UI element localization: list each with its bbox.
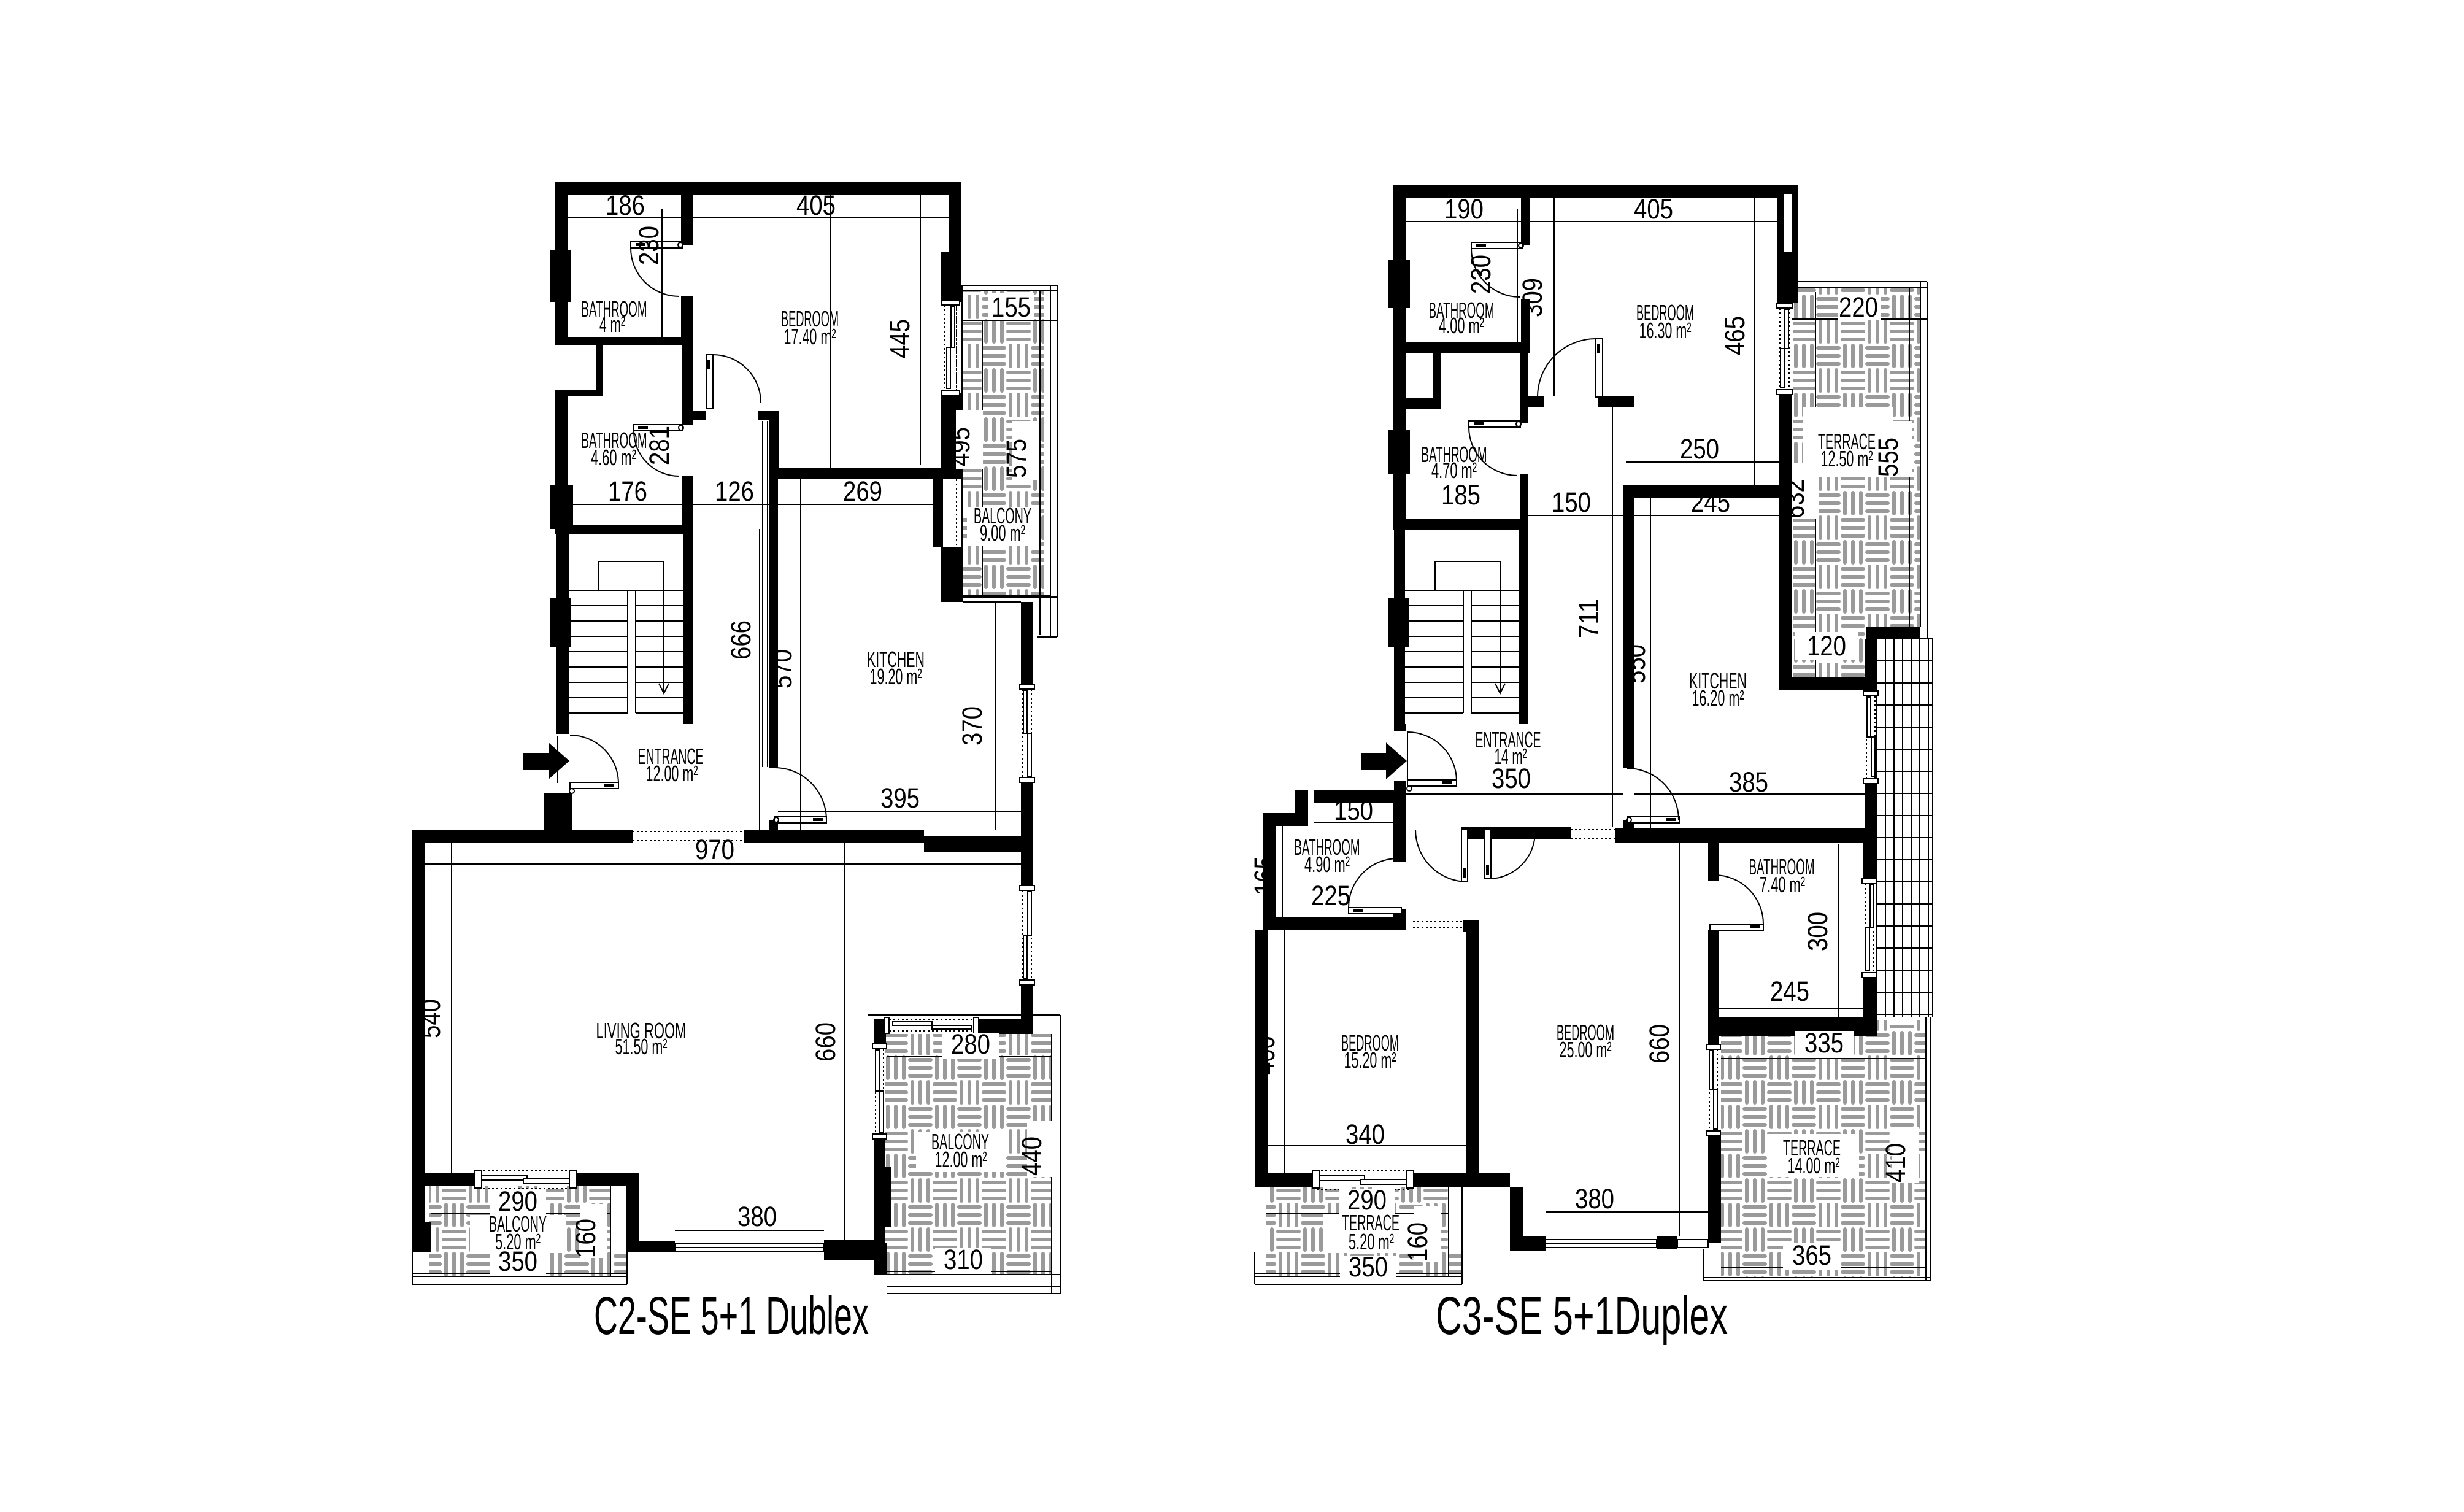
svg-text:176: 176	[608, 476, 647, 507]
svg-text:120: 120	[1807, 630, 1846, 661]
svg-text:666: 666	[725, 620, 757, 660]
svg-text:660: 660	[810, 1022, 841, 1062]
svg-text:250: 250	[1680, 433, 1719, 465]
svg-text:350: 350	[1349, 1251, 1388, 1282]
svg-text:165: 165	[1249, 856, 1280, 895]
svg-text:445: 445	[884, 319, 915, 358]
svg-text:310: 310	[944, 1244, 983, 1275]
svg-text:309: 309	[1517, 278, 1548, 317]
svg-text:220: 220	[1839, 291, 1878, 323]
svg-text:970: 970	[695, 834, 734, 865]
svg-text:540: 540	[415, 999, 446, 1038]
svg-text:280: 280	[951, 1028, 990, 1060]
svg-text:465: 465	[1719, 316, 1750, 355]
svg-text:5.20 m²: 5.20 m²	[495, 1229, 541, 1254]
svg-text:C2-SE 5+1 Dublex: C2-SE 5+1 Dublex	[594, 1286, 869, 1346]
svg-text:281: 281	[644, 426, 675, 465]
svg-text:17.40 m²: 17.40 m²	[784, 324, 836, 349]
svg-text:269: 269	[843, 476, 882, 507]
svg-text:395: 395	[880, 782, 920, 814]
svg-text:190: 190	[1444, 193, 1484, 225]
svg-text:155: 155	[991, 291, 1031, 323]
svg-text:230: 230	[1465, 255, 1496, 294]
svg-text:16.30 m²: 16.30 m²	[1639, 318, 1692, 343]
svg-text:185: 185	[1441, 479, 1480, 511]
svg-text:440: 440	[1016, 1136, 1047, 1176]
svg-text:370: 370	[957, 706, 988, 746]
svg-text:711: 711	[1573, 599, 1604, 638]
svg-text:575: 575	[1001, 439, 1032, 478]
svg-text:380: 380	[1575, 1183, 1614, 1214]
svg-text:570: 570	[766, 649, 798, 688]
svg-text:51.50 m²: 51.50 m²	[615, 1034, 668, 1059]
svg-text:632: 632	[1779, 479, 1810, 519]
svg-text:405: 405	[1634, 193, 1673, 225]
svg-text:25.00 m²: 25.00 m²	[1560, 1037, 1612, 1062]
svg-text:4 m²: 4 m²	[599, 312, 625, 337]
svg-text:160: 160	[1402, 1222, 1433, 1262]
svg-text:4.00 m²: 4.00 m²	[1439, 313, 1484, 338]
svg-text:405: 405	[796, 190, 836, 221]
svg-text:150: 150	[1334, 795, 1373, 826]
svg-text:4.90 m²: 4.90 m²	[1304, 852, 1350, 877]
svg-text:12.00 m²: 12.00 m²	[646, 761, 698, 786]
svg-text:5.20 m²: 5.20 m²	[1349, 1229, 1394, 1254]
svg-text:495: 495	[944, 427, 976, 466]
svg-text:150: 150	[1552, 487, 1591, 518]
svg-text:16.20 m²: 16.20 m²	[1692, 685, 1744, 711]
svg-text:300: 300	[1802, 912, 1833, 951]
svg-text:C3-SE 5+1Duplex: C3-SE 5+1Duplex	[1436, 1286, 1728, 1346]
svg-text:12.00 m²: 12.00 m²	[935, 1147, 987, 1172]
svg-text:550: 550	[1620, 644, 1651, 684]
svg-text:555: 555	[1873, 438, 1904, 477]
svg-text:7.40 m²: 7.40 m²	[1760, 872, 1805, 897]
svg-text:385: 385	[1729, 766, 1768, 798]
svg-text:160: 160	[570, 1219, 601, 1258]
svg-text:245: 245	[1691, 487, 1730, 518]
svg-text:225: 225	[1311, 880, 1350, 911]
svg-text:14 m²: 14 m²	[1495, 744, 1527, 769]
svg-text:14.00 m²: 14.00 m²	[1788, 1153, 1840, 1178]
svg-text:4.60 m²: 4.60 m²	[591, 445, 636, 470]
svg-text:19.20 m²: 19.20 m²	[870, 664, 922, 689]
svg-text:400: 400	[1249, 1036, 1280, 1075]
svg-text:9.00 m²: 9.00 m²	[980, 520, 1025, 546]
svg-text:380: 380	[737, 1201, 777, 1232]
svg-text:15.20 m²: 15.20 m²	[1344, 1047, 1396, 1073]
svg-text:365: 365	[1792, 1240, 1831, 1271]
svg-text:335: 335	[1804, 1027, 1844, 1059]
svg-text:245: 245	[1770, 976, 1809, 1007]
svg-text:660: 660	[1644, 1024, 1675, 1063]
svg-text:410: 410	[1880, 1143, 1911, 1182]
svg-text:340: 340	[1346, 1119, 1385, 1150]
svg-text:12.50 m²: 12.50 m²	[1821, 446, 1873, 471]
svg-text:126: 126	[715, 476, 754, 507]
svg-text:186: 186	[606, 190, 645, 221]
